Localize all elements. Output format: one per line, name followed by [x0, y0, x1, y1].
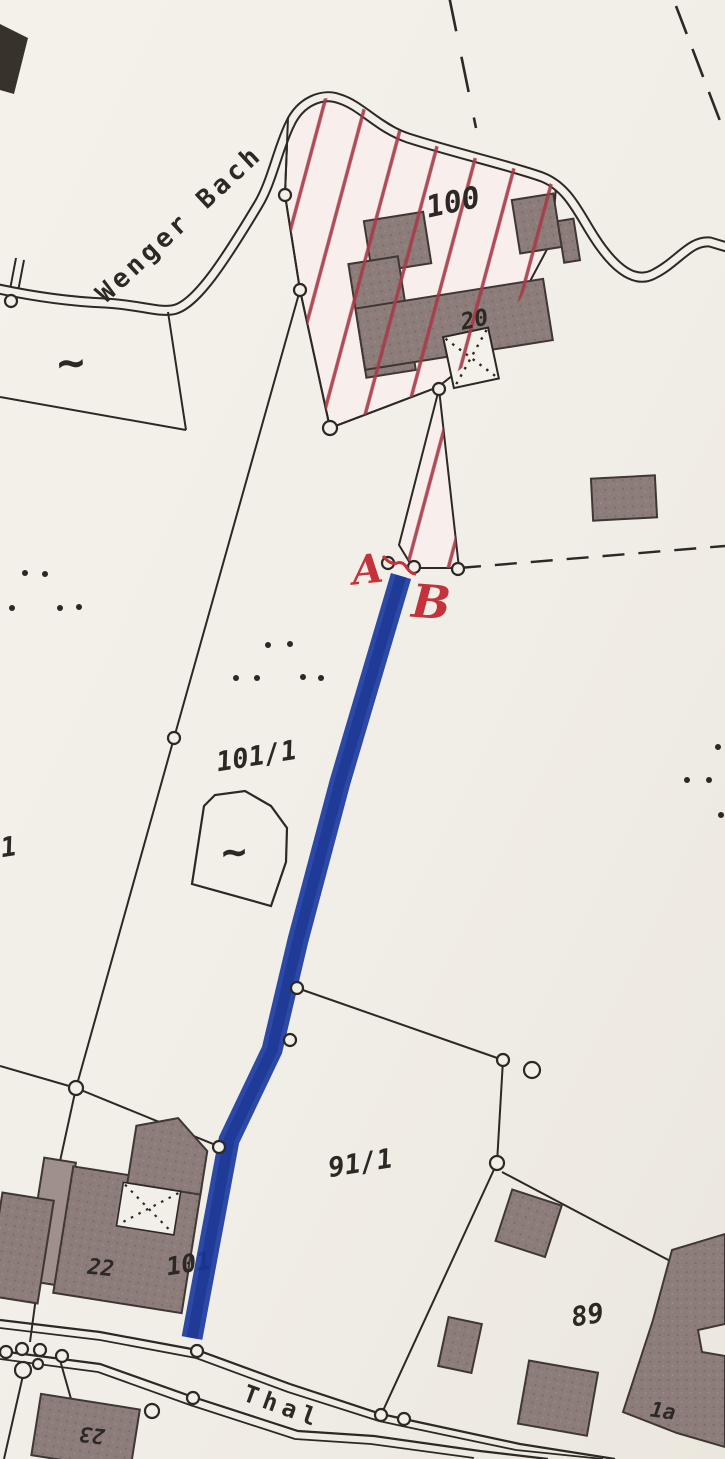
survey-point-marker	[279, 189, 291, 201]
survey-point-marker	[497, 1054, 509, 1066]
survey-point-marker	[284, 1034, 296, 1046]
survey-point-marker	[16, 1343, 28, 1355]
survey-point-marker	[5, 295, 17, 307]
building-22-open-part	[116, 1182, 180, 1235]
survey-point-marker	[433, 383, 445, 395]
meadow-dot	[265, 642, 271, 648]
building-mid-right	[591, 475, 657, 520]
meadow-dot	[718, 812, 724, 818]
meadow-dot	[233, 675, 239, 681]
survey-point-marker	[168, 732, 180, 744]
meadow-dot	[76, 604, 82, 610]
house-23-label: 23	[78, 1422, 107, 1449]
survey-point-marker	[187, 1392, 199, 1404]
survey-point-marker	[33, 1359, 43, 1369]
map-canvas: Wenger Bach 100 20 101/1 ~ ~ 1 91/1 22 1…	[0, 0, 725, 1459]
survey-point-marker	[375, 1409, 387, 1421]
meadow-dot	[684, 777, 690, 783]
survey-point-marker	[213, 1141, 225, 1153]
meadow-dot	[287, 641, 293, 647]
meadow-dot	[715, 744, 721, 750]
meadow-dot	[42, 571, 48, 577]
survey-point-marker	[191, 1345, 203, 1357]
house-1a-label: 1a	[649, 1397, 677, 1424]
survey-point-marker	[294, 284, 306, 296]
survey-point-marker	[0, 1346, 12, 1358]
survey-point-marker	[490, 1156, 504, 1170]
survey-point-marker	[34, 1344, 46, 1356]
survey-point-marker	[56, 1350, 68, 1362]
survey-point-marker	[145, 1404, 159, 1418]
wetland-symbol-101-1: ~	[220, 826, 249, 877]
survey-point-marker	[398, 1413, 410, 1425]
parcel-89-label: 89	[569, 1298, 606, 1334]
meadow-dot	[706, 777, 712, 783]
survey-point-marker	[524, 1062, 540, 1078]
meadow-dot	[9, 605, 15, 611]
meadow-dot	[300, 674, 306, 680]
annotation-point-b: B	[408, 574, 453, 631]
survey-point-marker	[15, 1362, 31, 1378]
survey-point-marker	[323, 421, 337, 435]
survey-point-marker	[452, 563, 464, 575]
building-89-south	[518, 1361, 598, 1436]
house-22-label: 22	[85, 1255, 115, 1283]
cadastral-map-scan: Wenger Bach 100 20 101/1 ~ ~ 1 91/1 22 1…	[0, 0, 725, 1459]
meadow-dot	[57, 605, 63, 611]
meadow-dot	[254, 675, 260, 681]
wetland-symbol-west: ~	[55, 334, 86, 390]
survey-point-marker	[69, 1081, 83, 1095]
meadow-dot	[318, 675, 324, 681]
meadow-dot	[22, 570, 28, 576]
survey-point-marker	[291, 982, 303, 994]
